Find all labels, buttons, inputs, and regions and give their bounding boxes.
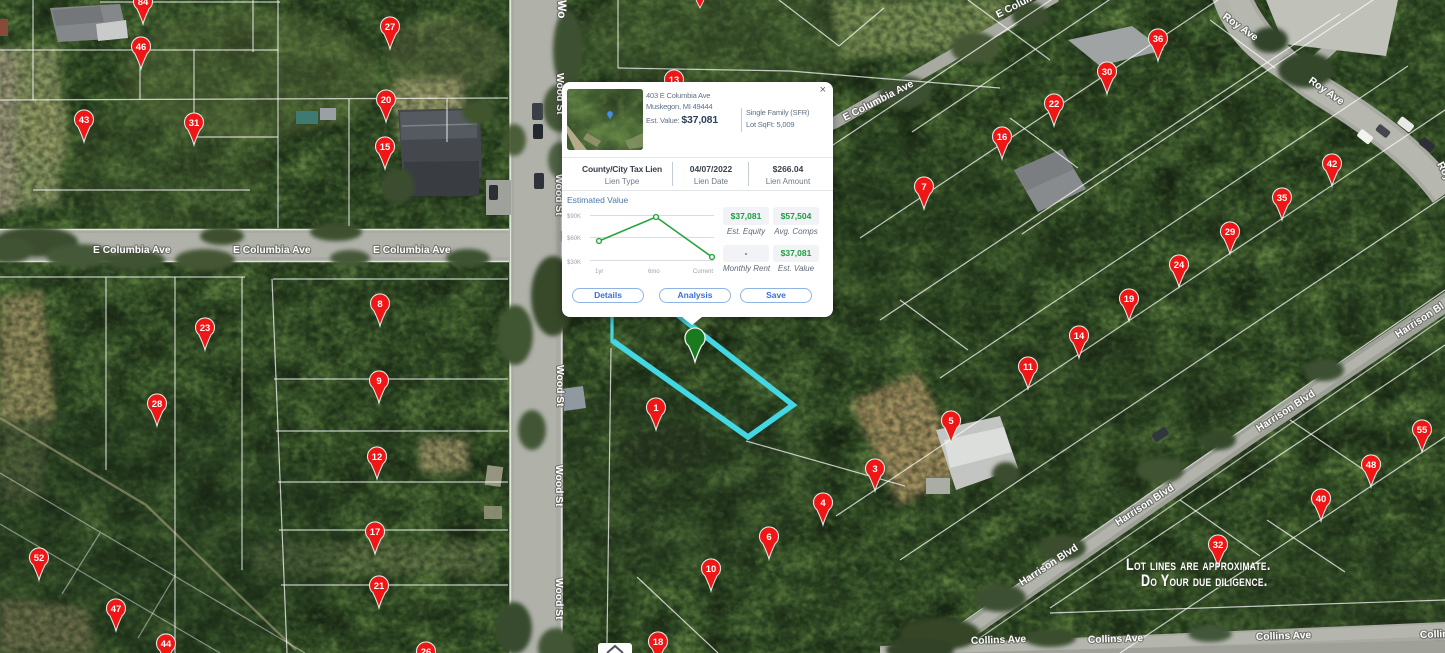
svg-text:1: 1: [653, 403, 659, 414]
svg-text:40: 40: [1316, 494, 1327, 505]
svg-text:$90K: $90K: [567, 214, 581, 220]
svg-text:5: 5: [948, 416, 954, 427]
svg-text:Wood St: Wood St: [554, 365, 565, 407]
svg-text:35: 35: [1277, 193, 1288, 204]
svg-text:8: 8: [377, 299, 382, 310]
svg-text:E Columbia Ave: E Columbia Ave: [373, 245, 451, 256]
svg-text:43: 43: [79, 115, 90, 126]
svg-text:28: 28: [152, 399, 163, 410]
svg-text:Collins: Collins: [1420, 629, 1445, 641]
svg-text:18: 18: [653, 637, 664, 648]
svg-text:36: 36: [1153, 34, 1164, 45]
svg-text:55: 55: [1417, 425, 1428, 436]
svg-text:19: 19: [1124, 294, 1135, 305]
svg-text:52: 52: [34, 553, 45, 564]
svg-text:24: 24: [1174, 260, 1185, 271]
svg-text:27: 27: [385, 22, 396, 33]
svg-text:E Columbia Ave: E Columbia Ave: [233, 245, 311, 256]
svg-text:47: 47: [111, 604, 122, 615]
svg-text:31: 31: [189, 118, 200, 129]
svg-text:23: 23: [200, 323, 211, 334]
svg-text:Current: Current: [693, 269, 713, 275]
svg-text:1yr: 1yr: [595, 269, 603, 275]
svg-text:6: 6: [766, 532, 771, 543]
svg-text:Do Your due diligence.: Do Your due diligence.: [1141, 571, 1268, 590]
svg-text:46: 46: [136, 42, 147, 53]
svg-text:14: 14: [1074, 331, 1085, 342]
svg-text:Wood St: Wood St: [553, 465, 564, 507]
svg-text:Collins Ave: Collins Ave: [1088, 633, 1144, 646]
svg-text:$60K: $60K: [567, 236, 581, 242]
svg-text:3: 3: [872, 464, 877, 475]
svg-text:21: 21: [374, 581, 385, 592]
svg-text:16: 16: [997, 132, 1008, 143]
svg-text:4: 4: [820, 498, 826, 509]
svg-text:26: 26: [421, 647, 432, 653]
svg-text:17: 17: [370, 527, 381, 538]
svg-text:30: 30: [1102, 67, 1113, 78]
svg-text:Collins Ave: Collins Ave: [971, 634, 1027, 647]
svg-text:32: 32: [1213, 540, 1224, 551]
svg-text:11: 11: [1023, 362, 1034, 373]
svg-text:E Columbia Ave: E Columbia Ave: [93, 245, 171, 256]
svg-text:9: 9: [376, 376, 381, 387]
svg-text:6mo: 6mo: [648, 269, 660, 275]
svg-text:$30K: $30K: [567, 260, 581, 266]
svg-text:29: 29: [1225, 227, 1236, 238]
svg-text:Collins Ave: Collins Ave: [1256, 630, 1312, 643]
svg-text:10: 10: [706, 564, 717, 575]
svg-text:12: 12: [372, 452, 383, 463]
svg-text:Wood St: Wood St: [553, 578, 564, 620]
svg-text:44: 44: [161, 639, 172, 650]
svg-text:42: 42: [1327, 159, 1338, 170]
svg-text:15: 15: [380, 142, 391, 153]
svg-text:48: 48: [1366, 460, 1377, 471]
svg-text:7: 7: [921, 182, 926, 193]
svg-text:Wo: Wo: [555, 0, 569, 18]
svg-text:22: 22: [1049, 99, 1060, 110]
svg-text:84: 84: [138, 0, 149, 8]
svg-text:20: 20: [381, 95, 392, 106]
